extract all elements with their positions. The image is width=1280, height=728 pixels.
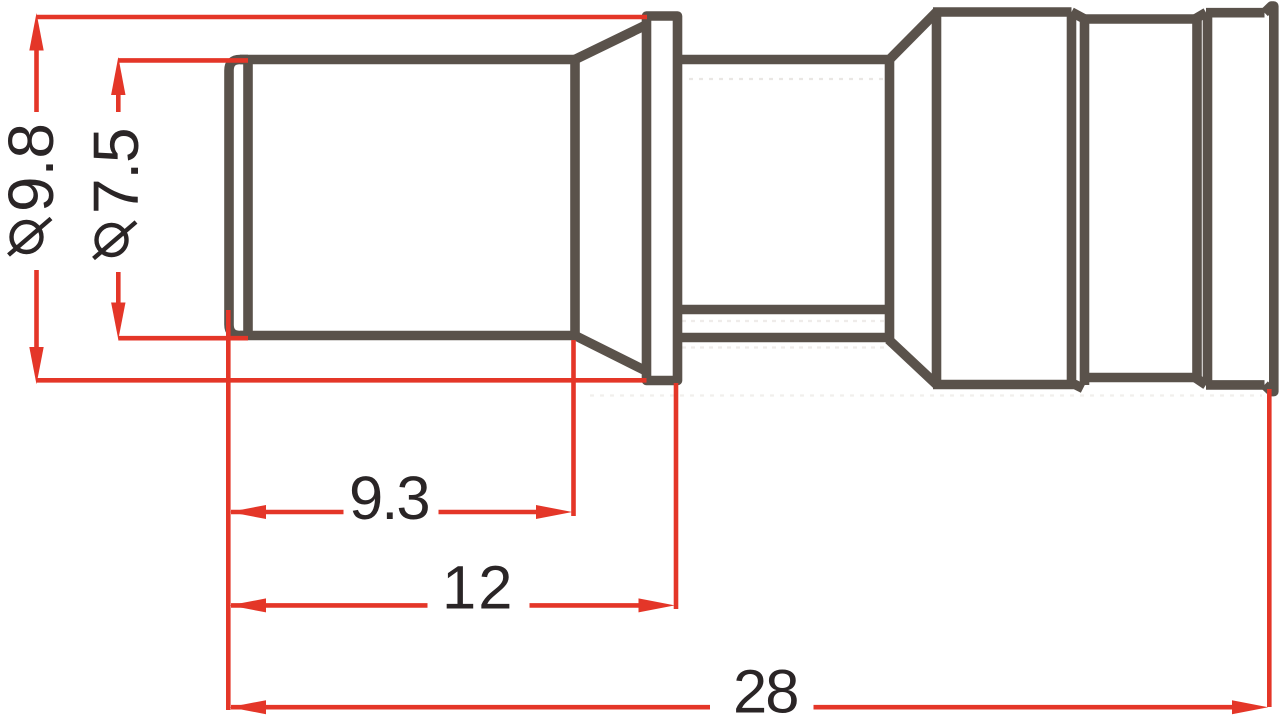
svg-text:7.5: 7.5	[80, 129, 152, 214]
svg-text:9.3: 9.3	[349, 464, 429, 533]
svg-text:9.8: 9.8	[0, 123, 67, 212]
svg-text:12: 12	[442, 554, 514, 623]
svg-text:28: 28	[733, 658, 797, 727]
